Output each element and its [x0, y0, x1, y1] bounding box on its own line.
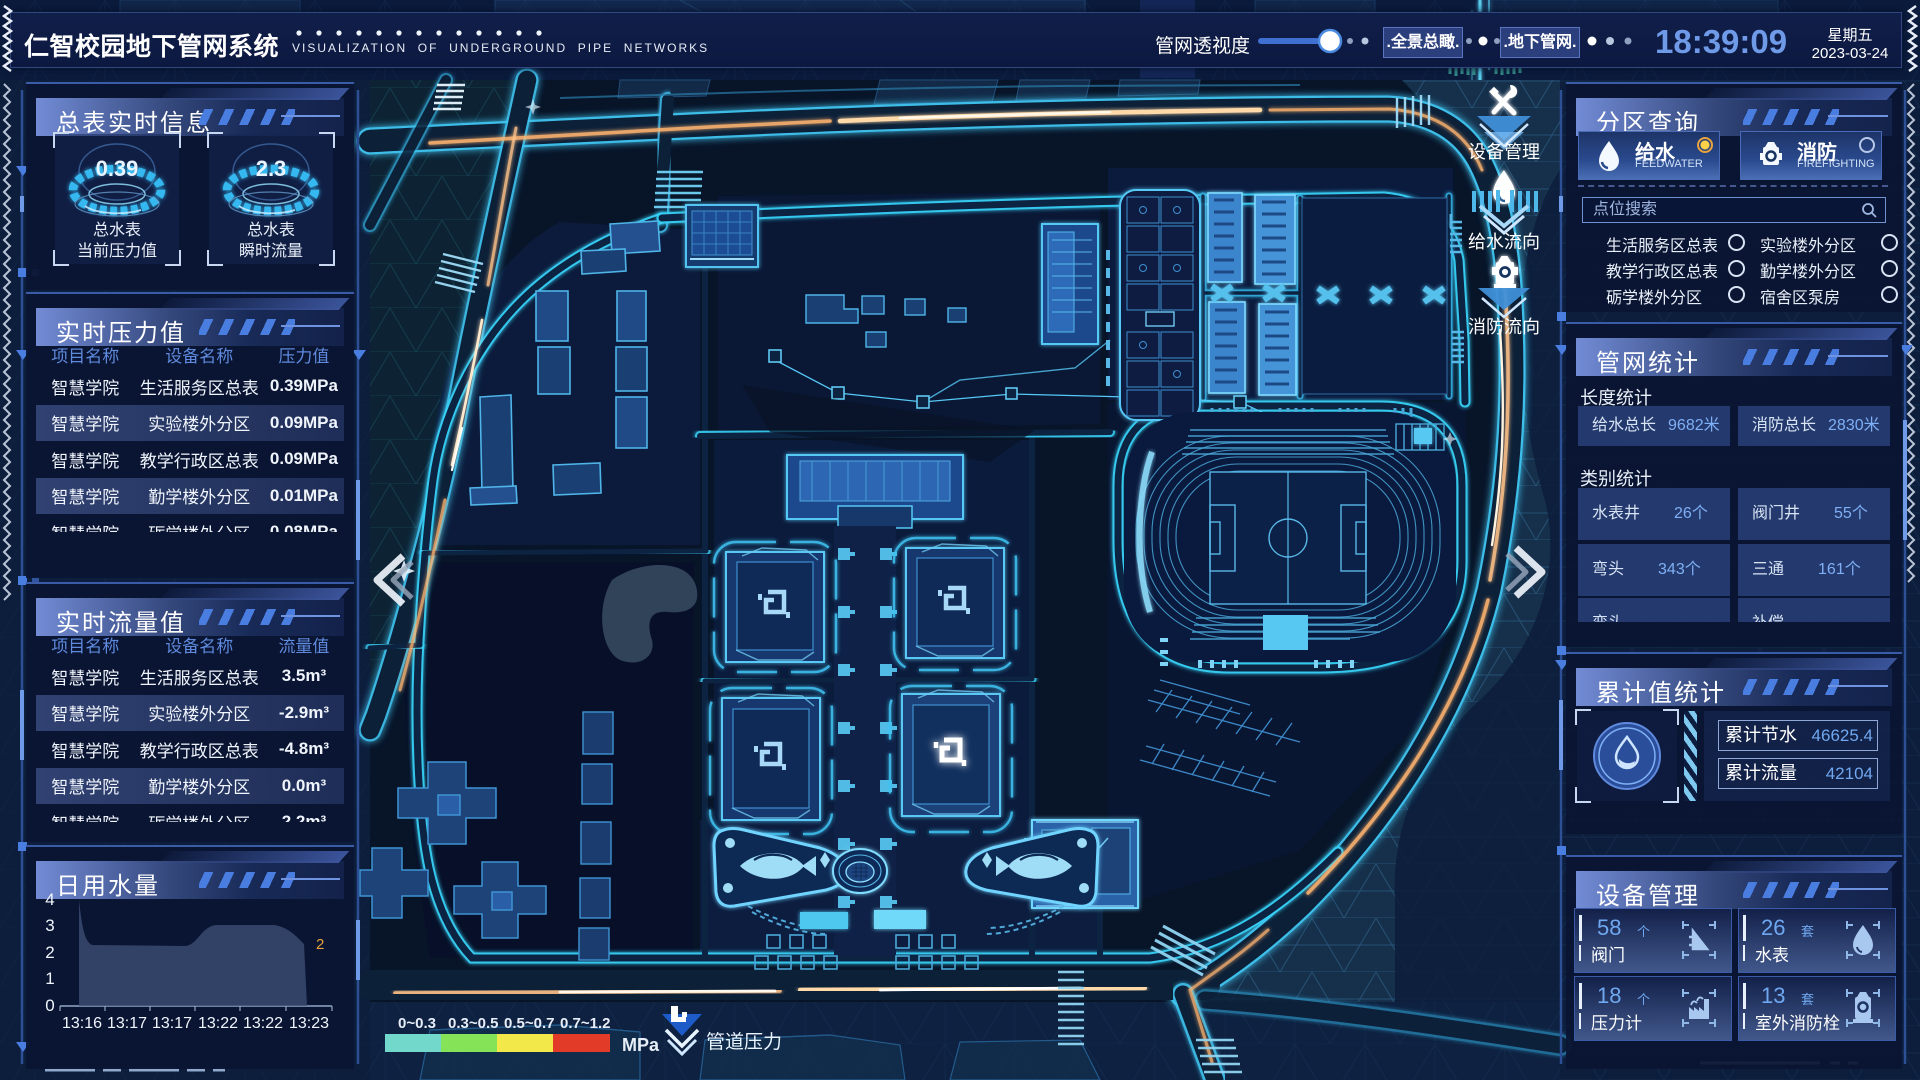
svg-text:给水流向: 给水流向	[1468, 232, 1540, 252]
svg-text:1: 1	[45, 969, 54, 988]
svg-text:2: 2	[45, 943, 54, 962]
svg-text:3: 3	[45, 916, 54, 935]
svg-text:13:16: 13:16	[62, 1015, 102, 1032]
svg-text:2: 2	[316, 936, 324, 953]
svg-text:2.3: 2.3	[256, 156, 287, 181]
svg-text:管道压力: 管道压力	[706, 1031, 782, 1053]
svg-text:13:22: 13:22	[198, 1015, 238, 1032]
svg-text:0.3~0.5: 0.3~0.5	[448, 1015, 498, 1032]
svg-text:MPa: MPa	[622, 1035, 660, 1055]
svg-text:0: 0	[45, 996, 54, 1015]
svg-text:13:17: 13:17	[152, 1015, 192, 1032]
svg-text:13:17: 13:17	[107, 1015, 147, 1032]
svg-text:0.5~0.7: 0.5~0.7	[504, 1015, 554, 1032]
svg-text:13:22: 13:22	[243, 1015, 283, 1032]
svg-text:13:23: 13:23	[289, 1015, 329, 1032]
svg-text:0.7~1.2: 0.7~1.2	[560, 1015, 610, 1032]
svg-text:消防流向: 消防流向	[1468, 317, 1540, 337]
svg-text:设备管理: 设备管理	[1468, 142, 1540, 162]
svg-text:0.39: 0.39	[96, 156, 139, 181]
svg-text:0~0.3: 0~0.3	[398, 1015, 436, 1032]
svg-text:4: 4	[45, 890, 54, 909]
